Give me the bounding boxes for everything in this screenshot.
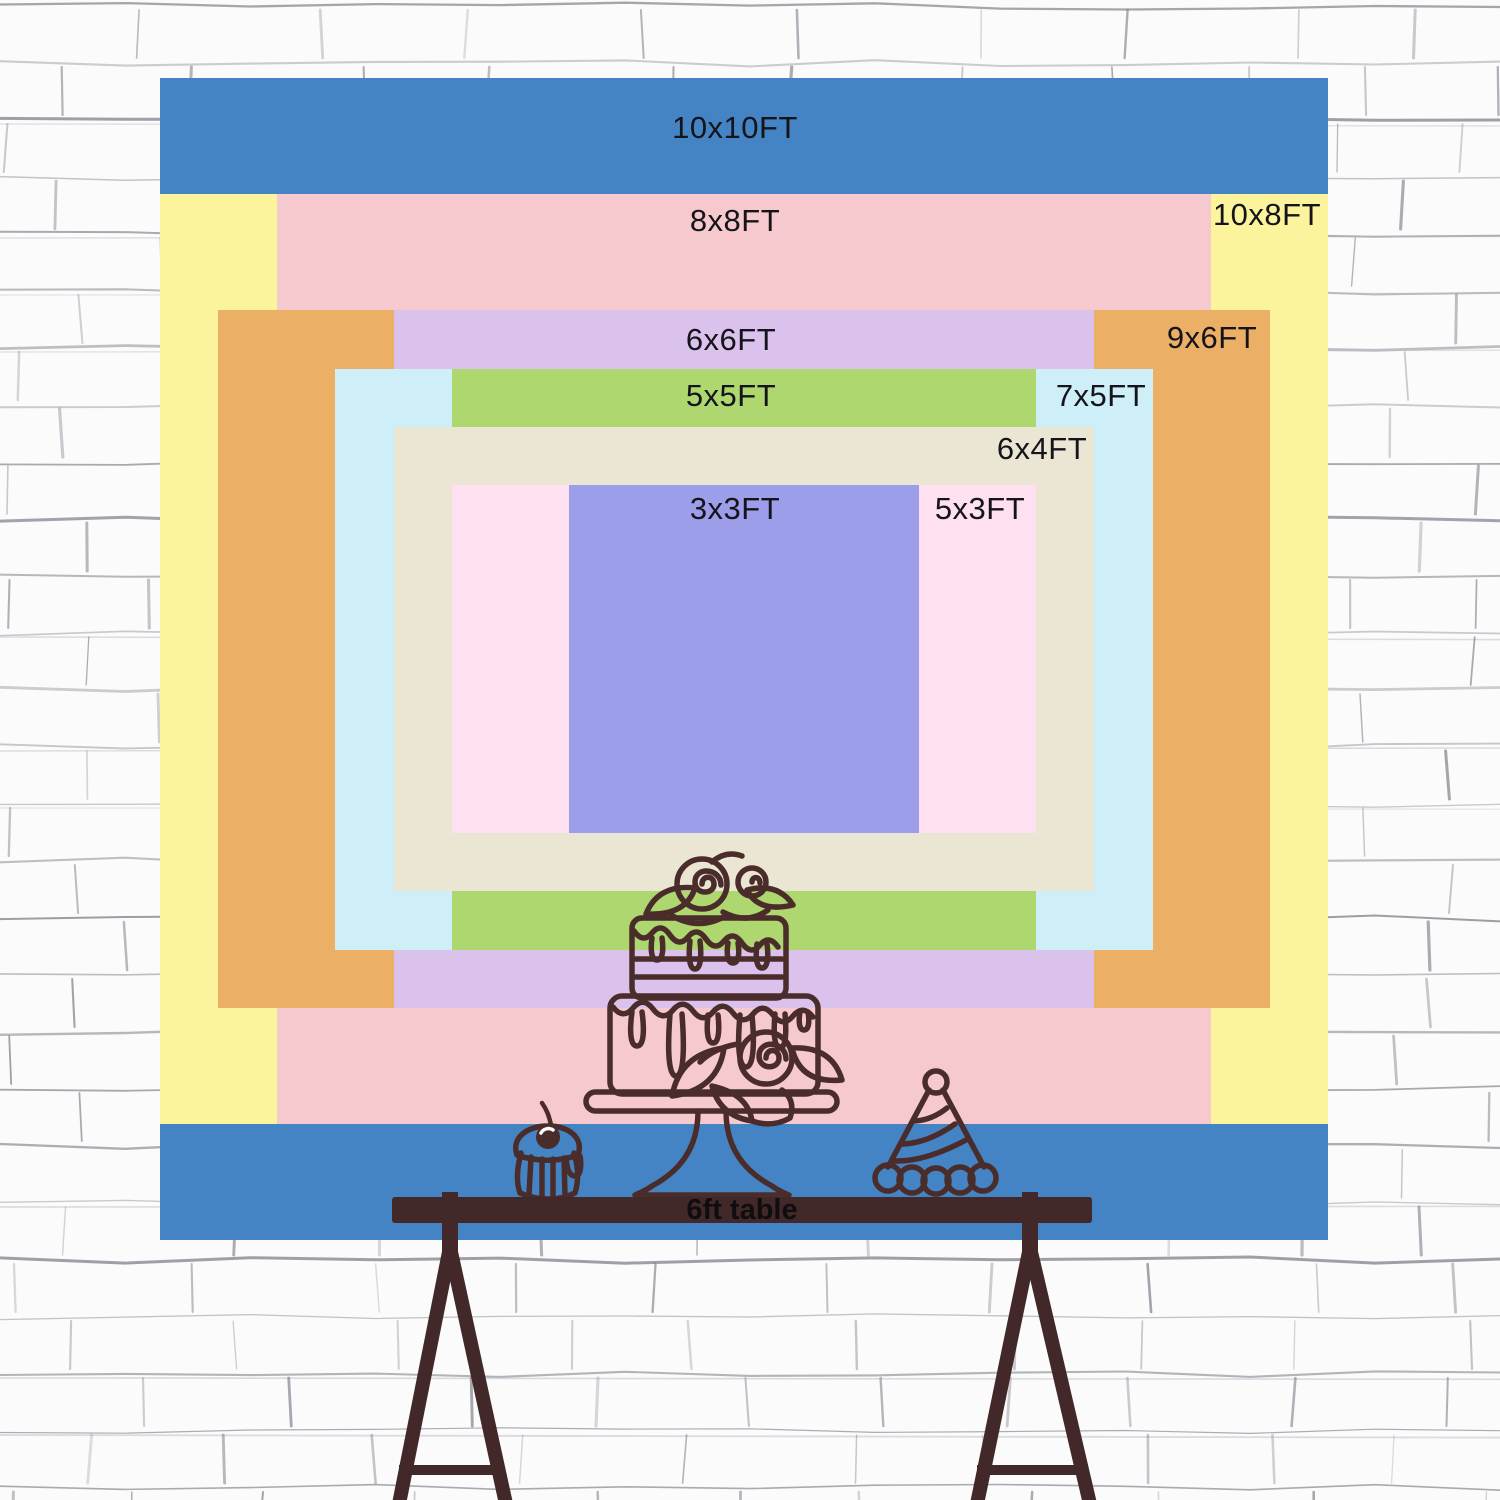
size-label-7x5ft: 7x5FT: [1056, 378, 1146, 414]
size-label-5x5ft: 5x5FT: [686, 378, 776, 414]
size-label-3x3ft: 3x3FT: [690, 491, 780, 527]
size-label-10x10ft: 10x10FT: [672, 110, 798, 146]
size-label-8x8ft: 8x8FT: [690, 203, 780, 239]
size-label-10x8ft: 10x8FT: [1213, 197, 1321, 233]
backdrop-size-chart: 10x10FT10x8FT8x8FT9x6FT6x6FT7x5FT5x5FT6x…: [160, 78, 1328, 1240]
size-rect-3x3ft: [569, 485, 919, 834]
size-label-6x6ft: 6x6FT: [686, 322, 776, 358]
size-label-9x6ft: 9x6FT: [1167, 320, 1257, 356]
size-label-6x4ft: 6x4FT: [997, 431, 1087, 467]
size-label-5x3ft: 5x3FT: [935, 491, 1025, 527]
scene: 10x10FT10x8FT8x8FT9x6FT6x6FT7x5FT5x5FT6x…: [0, 0, 1500, 1500]
